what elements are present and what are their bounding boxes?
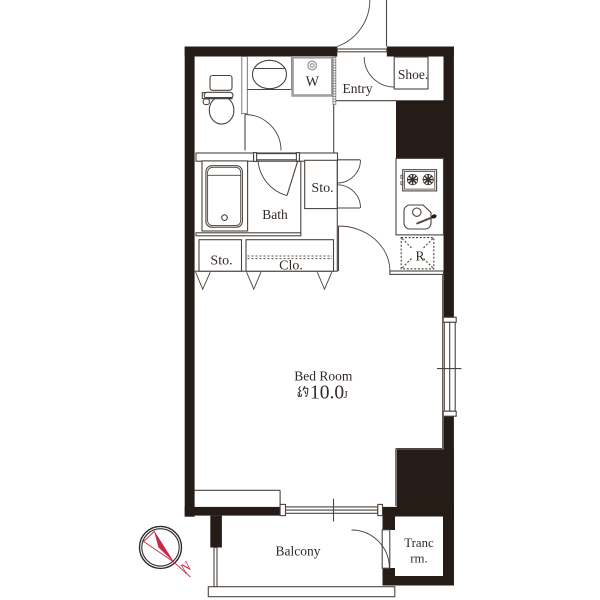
svg-text:Balcony: Balcony [276,544,321,559]
svg-text:Bed Room: Bed Room [294,369,353,384]
svg-text:Sto.: Sto. [210,254,232,269]
svg-text:Shoe.: Shoe. [398,67,428,82]
svg-text:rm.: rm. [410,552,427,566]
svg-text:10.0: 10.0 [310,383,344,404]
svg-text:Entry: Entry [343,81,373,96]
svg-text:W: W [306,74,320,90]
svg-text:Sto.: Sto. [311,181,333,196]
svg-text:Clo.: Clo. [279,259,303,274]
svg-text:Bath: Bath [262,207,288,222]
svg-text:J: J [344,390,348,401]
svg-text:Tranc: Tranc [404,536,434,550]
svg-text:R: R [415,249,424,264]
